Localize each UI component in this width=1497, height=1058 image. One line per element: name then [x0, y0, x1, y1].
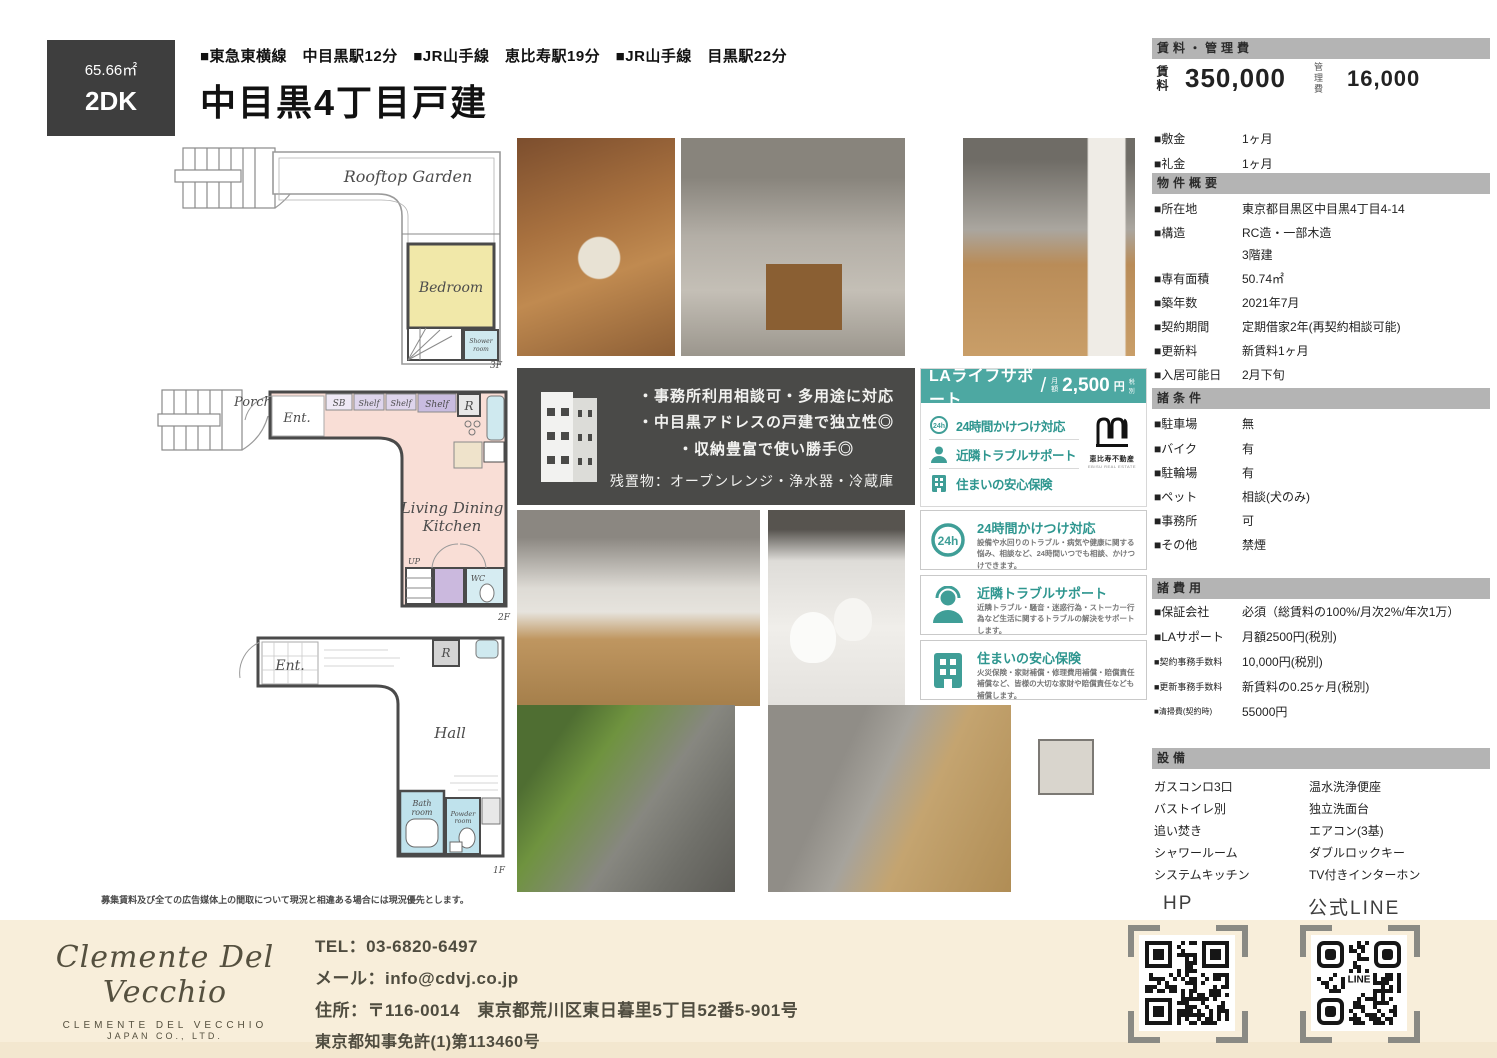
fee-row: ■更新事務手数料新賃料の0.25ヶ月(税別)	[1154, 678, 1369, 695]
la-item-insurance: 住まいの安心保険	[929, 469, 1079, 497]
room-label-hall: Hall	[433, 724, 466, 742]
photo-wood-floor-room	[963, 138, 1135, 356]
building-illustration-icon	[539, 388, 603, 486]
fee-row: ■契約事務手数料10,000円(税別)	[1154, 653, 1323, 670]
floor-label-2f: 2F	[497, 613, 511, 622]
floorplan-2f: Porch Ent. SB Shelf Shelf Shelf R Living…	[150, 380, 518, 622]
license-number: 東京都知事免許(1)第113460号	[315, 1028, 798, 1052]
la-support-title: LAライフサポート	[929, 362, 1036, 410]
line-qr-frame: LINE	[1300, 925, 1420, 1043]
contact-tel: TEL：03-6820-6497	[315, 932, 798, 957]
svg-text:room: room	[473, 346, 489, 353]
floor-label-1f: 1F	[493, 866, 506, 876]
station-access-line: ■東急東横線 中目黒駅12分 ■JR山手線 恵比寿駅19分 ■JR山手線 目黒駅…	[200, 45, 787, 66]
feature-line-3: ・収納豊富で使い勝手◎	[627, 437, 905, 463]
room-label-ldk: Living Dining	[400, 499, 504, 517]
la-detail-24h: 24h 24時間かけつけ対応 設備や水回りのトラブル・病気や健康に関する悩み、相…	[920, 510, 1147, 570]
svg-text:Shelf: Shelf	[359, 399, 382, 408]
floorplan-3f: Rooftop Garden Bedroom Shower room 3F	[150, 144, 510, 370]
24h-clock-icon: 24h	[929, 521, 967, 559]
equipment-columns: ガスコンロ3口 バストイレ別 追い焚き シャワールーム システムキッチン 温水洗…	[1154, 776, 1454, 886]
outline-row: ■所在地東京都目黒区中目黒4丁目4-14	[1154, 200, 1405, 217]
condition-row: ■その他禁煙	[1154, 536, 1266, 553]
condition-row: ■ペット相談(犬のみ)	[1154, 488, 1310, 505]
company-logo-script: Clemente Del Vecchio	[30, 940, 300, 1010]
outline-row: ■入居可能日2月下旬	[1154, 366, 1285, 383]
svg-text:Shelf: Shelf	[391, 399, 414, 408]
outline-row: ■築年数2021年7月	[1154, 294, 1299, 311]
svg-text:24h: 24h	[938, 534, 959, 548]
svg-text:room: room	[454, 817, 471, 825]
equipment-left-column: ガスコンロ3口 バストイレ別 追い焚き シャワールーム システムキッチン	[1154, 776, 1299, 886]
property-flyer: 65.66㎡ 2DK ■東急東横線 中目黒駅12分 ■JR山手線 恵比寿駅19分…	[0, 0, 1497, 1058]
remaining-items-note: 残置物：オーブンレンジ・浄水器・冷蔵庫	[597, 471, 907, 491]
svg-text:room: room	[411, 808, 432, 817]
layout-type: 2DK	[47, 86, 175, 117]
svg-text:UP: UP	[408, 557, 421, 566]
ebisu-real-estate-logo: 恵比寿不動産 EBISU REAL ESTATE	[1086, 415, 1138, 469]
deposit-row: ■敷金1ヶ月	[1154, 130, 1273, 147]
room-label-bath: Bath	[411, 799, 431, 808]
fee-row: ■保証会社必須（総賃料の100%/月次2%/年次1万）	[1154, 603, 1459, 620]
rent-label: 賃料	[1154, 65, 1171, 93]
section-header-conditions: 諸条件	[1152, 388, 1490, 409]
room-label-fridge-2f: R	[463, 399, 473, 413]
support-person-icon	[929, 444, 949, 464]
price-amount: 2,500	[1062, 375, 1110, 397]
room-label-porch: Porch	[233, 395, 272, 410]
24h-clock-icon: 24h	[929, 415, 949, 435]
svg-text:24h: 24h	[933, 423, 945, 430]
hp-qr-code	[1145, 941, 1229, 1025]
la-detail-neighbor: 近隣トラブルサポート 近隣トラブル・騒音・迷惑行為・ストーカー行為など生活に関す…	[920, 575, 1147, 635]
outline-row: ■契約期間定期借家2年(再契約相談可能)	[1154, 318, 1401, 335]
outline-row: 3階建	[1154, 246, 1273, 263]
room-label-rooftop: Rooftop Garden	[343, 167, 473, 186]
section-header-outline: 物件概要	[1152, 173, 1490, 194]
photo-concrete-kitchen	[681, 138, 905, 356]
la-detail-insurance: 住まいの安心保険 火災保険・家財補償・修理費用補償・賠償責任補償など、皆様の大切…	[920, 640, 1147, 700]
photo-stairs-plywood	[768, 705, 1011, 892]
photo-loft-ladder	[517, 138, 675, 356]
contact-address: 住所：〒116-0014 東京都荒川区東日暮里5丁目52番5-901号	[315, 996, 798, 1021]
insurance-building-icon	[929, 473, 949, 493]
feature-line-2: ・中目黒アドレスの戸建で独立性◎	[627, 410, 905, 436]
svg-text:Shelf: Shelf	[425, 400, 450, 410]
rent-figures: 賃料 350,000 管理費 16,000	[1154, 62, 1420, 95]
la-item-neighbor: 近隣トラブルサポート	[929, 440, 1079, 469]
line-qr-label: 公式LINE	[1308, 893, 1400, 920]
photo-bathroom-toilet	[768, 510, 905, 706]
condition-row: ■駐車場無	[1154, 415, 1254, 432]
fee-row: ■LAサポート月額2500円(税別)	[1154, 628, 1337, 645]
ebisu-logo-mark-icon	[1092, 415, 1132, 449]
support-person-icon	[929, 586, 967, 624]
line-qr-code: LINE	[1317, 941, 1401, 1025]
fee-row: ■清掃費(契約時)55000円	[1154, 703, 1287, 720]
mgmt-fee-value: 16,000	[1347, 66, 1420, 92]
outline-row: ■構造RC造・一部木造	[1154, 224, 1331, 241]
room-label-fridge-1f: R	[440, 646, 450, 660]
floor-area: 65.66㎡	[47, 59, 175, 80]
mgmt-fee-label: 管理費	[1312, 62, 1325, 95]
photo-room-window	[1015, 705, 1140, 892]
section-header-rent: 賃料・管理費	[1152, 38, 1490, 59]
rent-value: 350,000	[1185, 63, 1286, 94]
contact-email: メール：info@cdvj.co.jp	[315, 964, 798, 989]
room-label-bedroom: Bedroom	[418, 280, 483, 296]
insurance-building-icon	[929, 651, 967, 689]
outline-row: ■専有面積50.74㎡	[1154, 270, 1284, 287]
svg-text:Kitchen: Kitchen	[422, 517, 482, 535]
feature-box: ・事務所利用相談可・多用途に対応 ・中目黒アドレスの戸建で独立性◎ ・収納豊富で…	[517, 368, 915, 505]
room-label-wc: WC	[471, 574, 485, 583]
section-header-equipment: 設備	[1152, 748, 1490, 769]
hp-qr-label: HP	[1163, 893, 1193, 915]
company-logo: Clemente Del Vecchio CLEMENTE DEL VECCHI…	[30, 940, 300, 1041]
floor-label-3f: 3F	[490, 361, 503, 370]
contact-info: TEL：03-6820-6497 メール：info@cdvj.co.jp 住所：…	[315, 932, 798, 1058]
photo-garden-balcony	[517, 705, 735, 892]
size-layout-badge: 65.66㎡ 2DK	[47, 40, 175, 136]
feature-line-1: ・事務所利用相談可・多用途に対応	[627, 384, 905, 410]
property-title: 中目黒4丁目戸建	[200, 74, 488, 126]
condition-row: ■事務所可	[1154, 512, 1254, 529]
room-label-ent-1f: Ent.	[274, 658, 304, 674]
photo-living-kitchen	[517, 510, 760, 706]
outline-row: ■更新料新賃料1ヶ月	[1154, 342, 1309, 359]
svg-text:SB: SB	[333, 399, 346, 409]
hp-qr-frame	[1128, 925, 1248, 1043]
equipment-right-column: 温水洗浄便座 独立洗面台 エアコン(3基) ダブルロックキー TV付きインターホ…	[1309, 776, 1454, 886]
floorplan-1f: Ent. R Hall Bath room Powder room 1F	[228, 626, 516, 876]
condition-row: ■バイク有	[1154, 440, 1254, 457]
key-money-row: ■礼金1ヶ月	[1154, 155, 1273, 172]
section-header-fees: 諸費用	[1152, 578, 1490, 599]
room-label-shower: Shower	[469, 338, 493, 345]
la-life-support-box: LAライフサポート / 月額 2,500 円 税別 24h 24時間かけつけ対応…	[920, 368, 1147, 507]
la-support-header: LAライフサポート / 月額 2,500 円 税別	[921, 369, 1146, 403]
condition-row: ■駐輪場有	[1154, 464, 1254, 481]
price-prefix: 月額	[1051, 378, 1058, 393]
la-item-24h: 24h 24時間かけつけ対応	[929, 411, 1079, 440]
room-label-ent-2f: Ent.	[282, 411, 310, 426]
plan-disclaimer: 募集賃料及び全ての広告媒体上の間取について現況と相違ある場合には現況優先とします…	[60, 893, 510, 906]
